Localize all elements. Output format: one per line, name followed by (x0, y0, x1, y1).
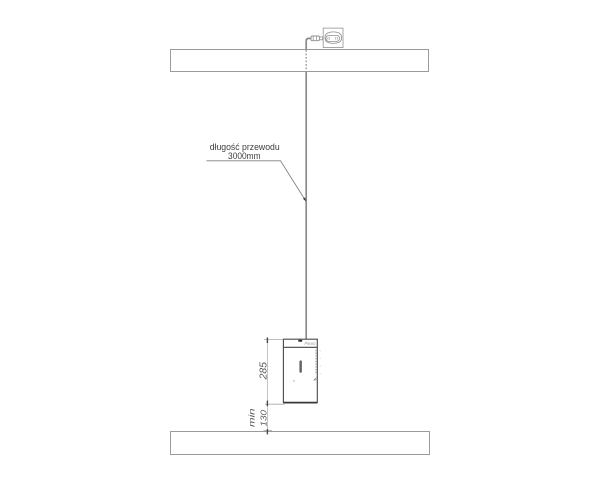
svg-text:min: min (247, 408, 256, 427)
svg-text:Plexio: Plexio (304, 341, 316, 346)
svg-text:285: 285 (257, 362, 269, 380)
svg-text:130: 130 (260, 410, 269, 427)
svg-text:3000mm: 3000mm (228, 151, 261, 161)
